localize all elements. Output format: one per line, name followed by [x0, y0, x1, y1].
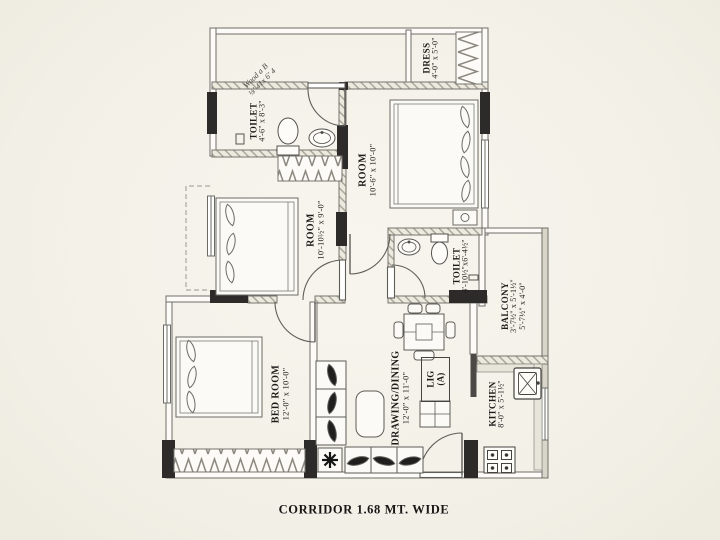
dining-table-icon — [404, 314, 444, 350]
side-table-icon — [453, 210, 477, 225]
door-arc — [420, 433, 462, 478]
sofa-icon — [345, 447, 423, 473]
window-icon — [542, 388, 548, 440]
wc-icon — [277, 118, 299, 155]
sink-icon — [514, 368, 541, 399]
room-label-balcony: BALCONY 3'-7½" x 5'-1½" 5'-7½" x 4'-0" — [500, 279, 528, 333]
unit-tag-label: LIG (A) — [425, 371, 445, 388]
door-arc — [275, 302, 315, 342]
washbasin-icon — [398, 239, 420, 255]
window-icon — [482, 140, 489, 208]
window-icon — [208, 196, 215, 256]
sofa-icon — [316, 361, 346, 445]
bed-icon — [390, 100, 478, 208]
floor-plan-linework — [0, 0, 720, 540]
room-label-dress: DRESS 4'-0" x 5'-0" — [421, 37, 440, 78]
fan-icon — [318, 448, 342, 472]
shelf-icon — [236, 134, 244, 144]
unit-tag-box: LIG (A) — [421, 357, 450, 402]
door-arc — [303, 260, 346, 300]
door-arc — [388, 265, 426, 298]
bed-icon — [216, 198, 298, 295]
room-label-room-left: ROOM 10'-10½" x 9'-0" — [306, 200, 327, 259]
room-label-toilet-mid: TOILET 4'-10½"x6'-4½" — [451, 239, 470, 293]
room-label-drawing-dining: DRAWING/DINING 12'-0" x 11'-0" — [391, 350, 412, 445]
room-label-toilet-top: TOILET 4'-6" x 8'-3" — [248, 100, 267, 141]
center-table-icon — [356, 391, 384, 437]
chair-icon — [394, 322, 403, 338]
stove-icon — [484, 447, 515, 473]
chair-icon — [446, 322, 455, 338]
floor-plan-canvas: TOILET 4'-6" x 8'-3" DRESS 4'-0" x 5'-0"… — [0, 0, 720, 540]
door-arc — [350, 234, 390, 274]
wardrobe-icon — [278, 156, 342, 181]
chair-icon — [426, 304, 440, 313]
room-label-bed-room: BED ROOM 12'-0" x 10'-0" — [271, 365, 292, 423]
dashed-projection — [186, 186, 210, 290]
room-label-room-right: ROOM 10'-6" x 10'-0" — [358, 144, 379, 197]
chair-icon — [408, 304, 422, 313]
wc-icon — [431, 234, 448, 264]
window-icon — [164, 325, 171, 403]
washbasin-icon — [309, 129, 335, 147]
wardrobe-icon — [456, 32, 482, 84]
window-bar-icon — [471, 354, 477, 397]
wardrobe-icon — [174, 449, 305, 472]
corridor-label: CORRIDOR 1.68 MT. WIDE — [279, 503, 450, 518]
room-label-kitchen: KITCHEN 8'-0" x 5'-1½" — [487, 380, 506, 428]
cabinet-icon — [420, 401, 450, 427]
bed-icon — [176, 337, 262, 417]
